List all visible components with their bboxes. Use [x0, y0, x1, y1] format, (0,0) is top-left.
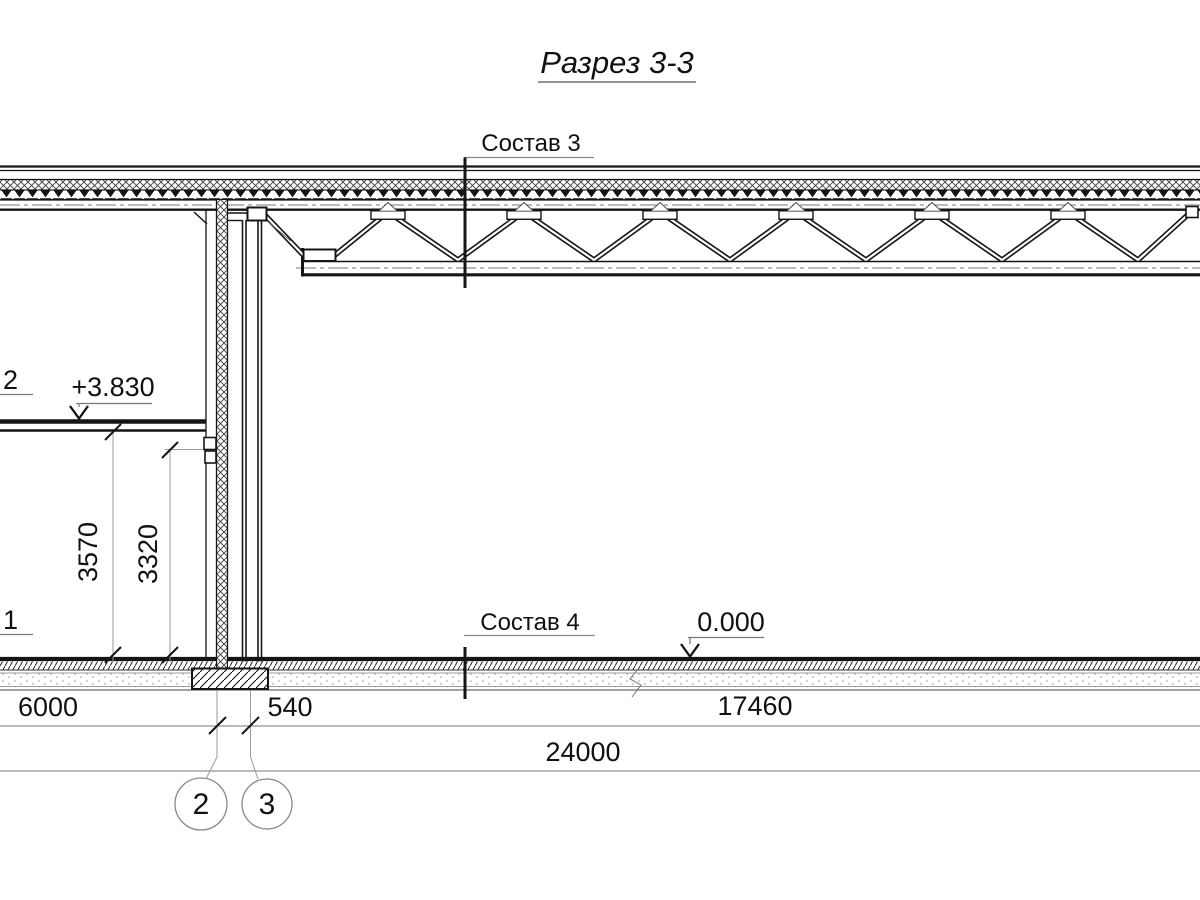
slab-bracket-upper — [204, 438, 216, 450]
title-block: Разрез 3-3 — [538, 45, 696, 82]
floor-screed-hatch-right — [228, 662, 1200, 670]
slab-bracket-lower — [205, 451, 216, 463]
dim-hall-span: 17460 — [717, 691, 792, 721]
wall-panel-hatch — [217, 200, 228, 668]
dim-bay-left: 6000 — [18, 692, 78, 722]
vertical-dimensions: 3570 3320 — [73, 424, 203, 663]
dim-clear-height: 3320 — [133, 524, 163, 584]
section-drawing-sheet: Разрез 3-3 — [0, 0, 1200, 900]
right-edge-connection — [1186, 207, 1198, 218]
elevation-ground: 0.000 — [681, 607, 765, 657]
section-drawing: Разрез 3-3 — [0, 0, 1200, 900]
roof-truss — [262, 203, 1200, 277]
floor-assembly-label: Состав 4 — [480, 609, 580, 636]
elevation-slab: +3.830 — [70, 372, 155, 419]
roof-assembly-label: Состав 3 — [481, 130, 581, 157]
column-bearing-plate — [248, 208, 267, 221]
ground-floor — [0, 659, 1200, 697]
floor-screed-hatch-left — [0, 662, 216, 670]
dim-wall-offset: 540 — [267, 692, 312, 722]
elevation-arrow-slab — [70, 406, 88, 419]
drawing-title: Разрез 3-3 — [540, 45, 694, 80]
grid-bubble-3-label: 3 — [259, 788, 276, 821]
left-label-lower: 1 — [3, 605, 18, 635]
horizontal-dimensions: 6000 540 17460 24000 — [0, 690, 1200, 771]
ceiling-console — [194, 212, 207, 224]
subbase-right — [268, 673, 1200, 687]
grid-bubbles: 2 3 — [175, 757, 292, 830]
dim-total-span: 24000 — [545, 737, 620, 767]
roof-assembly — [0, 167, 1200, 210]
elevation-arrow-ground — [681, 644, 699, 657]
slab-elevation-value: +3.830 — [71, 372, 154, 402]
foundation-block — [192, 669, 268, 690]
ground-elevation-value: 0.000 — [697, 607, 765, 637]
roof-insulation-hatch — [0, 180, 1200, 191]
wall-and-column — [194, 200, 291, 668]
left-axis-labels: 2 1 — [0, 365, 33, 635]
haunch-edge — [267, 221, 291, 241]
truss-bearing-seat — [304, 250, 336, 262]
dim-room-height: 3570 — [73, 522, 103, 582]
annex-slab — [0, 422, 206, 431]
left-label-upper: 2 — [3, 365, 18, 395]
subbase-left — [0, 673, 192, 687]
grid-bubble-2-label: 2 — [193, 788, 210, 821]
roof-deck-profile — [0, 191, 1200, 200]
